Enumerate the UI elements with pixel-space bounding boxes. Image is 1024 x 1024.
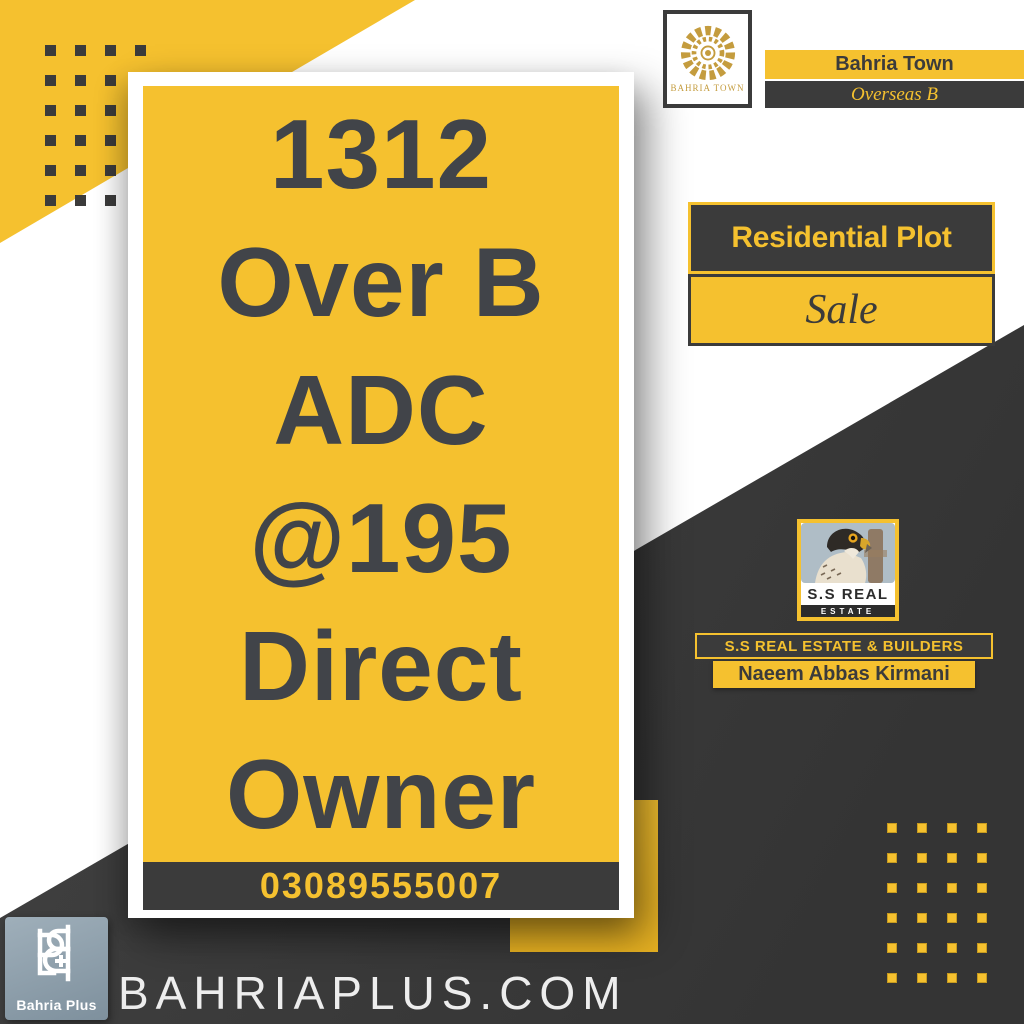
headline-line: Over B bbox=[217, 218, 544, 346]
falcon-photo-icon bbox=[801, 523, 895, 583]
phone-number-bar: 03089555007 bbox=[143, 862, 619, 910]
agency-logo-box: S.S REAL ESTATE bbox=[797, 519, 899, 621]
developer-name-bar: Bahria Town bbox=[765, 50, 1024, 79]
phone-number: 03089555007 bbox=[260, 865, 502, 907]
developer-name: Bahria Town bbox=[835, 53, 954, 76]
bahria-town-medallion-icon bbox=[680, 25, 736, 81]
developer-phase-bar: Overseas B bbox=[765, 81, 1024, 108]
developer-phase: Overseas B bbox=[851, 84, 938, 106]
agent-name: Naeem Abbas Kirmani bbox=[738, 663, 950, 686]
listing-status: Sale bbox=[805, 286, 877, 334]
agent-name-bar: Naeem Abbas Kirmani bbox=[713, 661, 975, 688]
headline-line: 1312 bbox=[270, 90, 492, 218]
listing-status-box: Sale bbox=[688, 274, 995, 346]
listing-category: Residential Plot bbox=[731, 221, 951, 255]
poster-canvas: 1312 Over B ADC @195 Direct Owner 030895… bbox=[0, 0, 1024, 1024]
bahria-plus-logo-box: Bahria Plus bbox=[5, 917, 108, 1020]
agency-logo-subtitle: ESTATE bbox=[801, 605, 895, 617]
dot-grid-bottom-right bbox=[887, 823, 987, 983]
headline-line: @195 bbox=[249, 474, 512, 602]
bahria-plus-caption: Bahria Plus bbox=[16, 997, 96, 1013]
agency-logo-title: S.S REAL bbox=[801, 583, 895, 605]
headline-line: ADC bbox=[273, 346, 488, 474]
bahria-plus-monogram-icon bbox=[24, 921, 88, 991]
website-url: BAHRIAPLUS.COM bbox=[118, 966, 628, 1020]
agency-banner: S.S REAL ESTATE & BUILDERS bbox=[695, 633, 993, 659]
listing-category-box: Residential Plot bbox=[688, 202, 995, 274]
listing-headline-panel: 1312 Over B ADC @195 Direct Owner bbox=[143, 86, 619, 862]
agency-banner-text: S.S REAL ESTATE & BUILDERS bbox=[725, 638, 964, 655]
headline-line: Direct bbox=[239, 602, 523, 730]
headline-line: Owner bbox=[226, 730, 536, 858]
listing-card: 1312 Over B ADC @195 Direct Owner 030895… bbox=[128, 72, 634, 918]
bahria-town-logo-box: BAHRIA TOWN bbox=[663, 10, 752, 108]
bahria-town-logo-caption: BAHRIA TOWN bbox=[671, 83, 745, 93]
